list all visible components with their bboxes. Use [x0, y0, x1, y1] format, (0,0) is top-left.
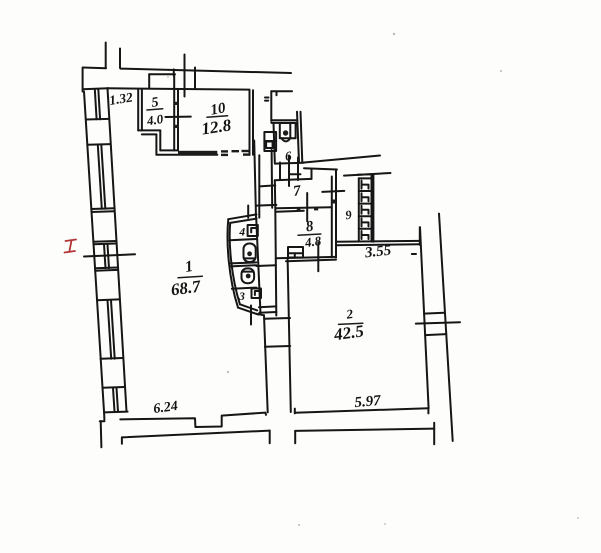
svg-text:3.55: 3.55 [363, 243, 392, 262]
svg-text:68.7: 68.7 [170, 276, 204, 299]
svg-text:1: 1 [184, 258, 195, 276]
svg-text:4.0: 4.0 [145, 111, 165, 128]
svg-text:1.32: 1.32 [108, 89, 134, 108]
svg-text:42.5: 42.5 [332, 321, 366, 344]
svg-text:3: 3 [238, 291, 245, 303]
svg-text:7: 7 [292, 183, 302, 200]
svg-text:5: 5 [151, 95, 160, 111]
svg-text:9: 9 [345, 208, 354, 223]
svg-text:2: 2 [345, 306, 355, 322]
svg-text:12.8: 12.8 [200, 115, 233, 138]
svg-text:6.24: 6.24 [152, 399, 178, 417]
svg-text:6: 6 [284, 148, 293, 164]
svg-text:4: 4 [238, 227, 245, 239]
svg-text:5.97: 5.97 [354, 393, 382, 411]
svg-text:4.8: 4.8 [303, 233, 323, 250]
